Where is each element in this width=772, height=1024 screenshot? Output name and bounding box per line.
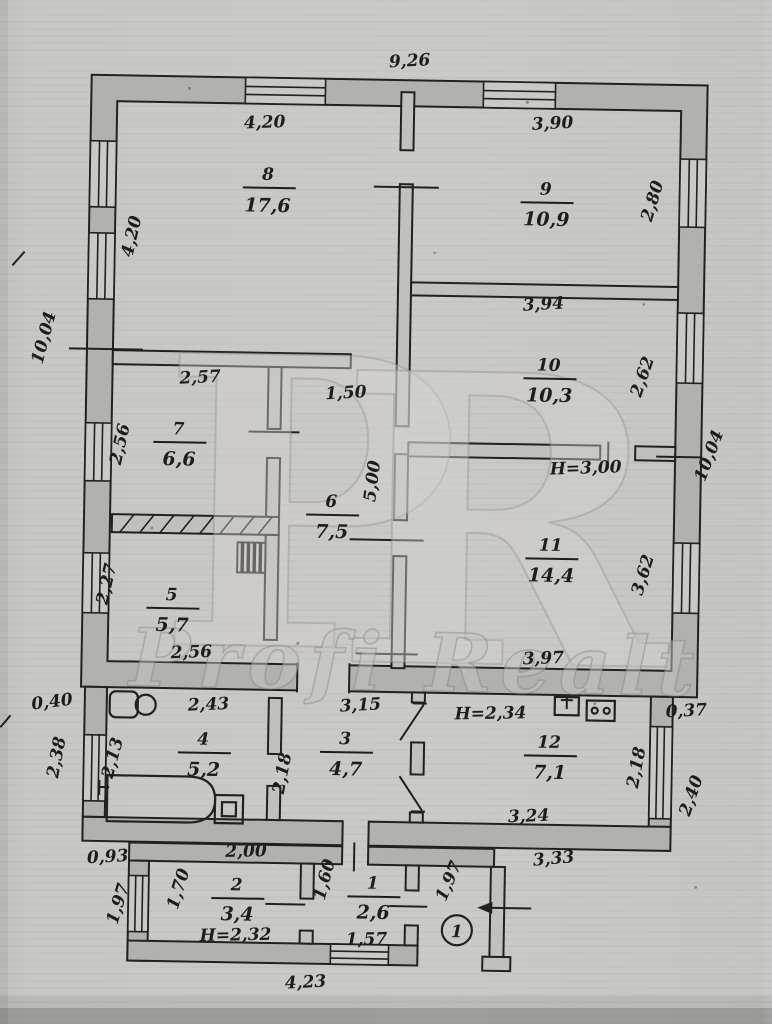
svg-text:2: 2 (230, 875, 243, 895)
window (88, 233, 115, 299)
bathtub-icon (99, 775, 216, 823)
room-label-9: 910,9 (520, 179, 574, 231)
window (672, 543, 699, 613)
wall-segment (405, 925, 418, 945)
room-label-1: 12,6 (347, 873, 401, 924)
floorplan: 1 P R Profi Realt 817,6 910,9 (0, 43, 735, 1001)
svg-text:11: 11 (539, 536, 563, 556)
window (676, 313, 703, 383)
dim-room8-width: 4,20 (244, 112, 286, 133)
svg-text:6,6: 6,6 (162, 448, 195, 471)
dim-top-width: 9,26 (388, 50, 431, 72)
svg-text:5,2: 5,2 (187, 758, 220, 781)
dim-bottom-width: 4,23 (284, 972, 327, 994)
dim-room3-height: 2,18 (269, 751, 297, 797)
dim-room9-height: 2,80 (637, 178, 669, 225)
svg-text:7,5: 7,5 (315, 521, 348, 544)
dim-room8-height: 4,20 (118, 214, 147, 259)
dim-ceiling-annex: H=2,34 (453, 703, 526, 724)
watermark: P R Profi Realt (126, 269, 709, 763)
svg-text:3,4: 3,4 (220, 903, 253, 926)
dim-room12-width: 3,24 (508, 806, 550, 827)
wall-segment (482, 957, 510, 971)
svg-text:9: 9 (540, 180, 552, 200)
svg-text:10: 10 (537, 356, 561, 376)
dim-room11-width: 3,97 (522, 648, 564, 669)
room-label-8: 817,6 (242, 164, 296, 217)
window (679, 159, 706, 227)
wall-segment (406, 865, 419, 890)
svg-text:4: 4 (197, 730, 209, 750)
dim-ceiling-main: H=3,00 (548, 457, 622, 480)
svg-text:7,1: 7,1 (533, 762, 566, 785)
dim-left-height: 10,04 (28, 309, 61, 366)
svg-text:3: 3 (339, 729, 351, 749)
wall-segment (368, 847, 494, 867)
svg-text:14,4: 14,4 (528, 564, 575, 587)
wall-segment (400, 92, 414, 150)
wall-segment (410, 812, 423, 822)
svg-text:5,7: 5,7 (155, 614, 188, 637)
window (483, 82, 555, 109)
window (89, 141, 116, 207)
dim-room4-width: 2,43 (186, 694, 229, 715)
dim-room1-width: 1,57 (346, 929, 388, 950)
entrance-badge-number: 1 (451, 922, 463, 942)
svg-text:12: 12 (537, 733, 561, 753)
svg-text:10,3: 10,3 (526, 384, 573, 407)
dim-room9-width: 3,90 (531, 113, 574, 135)
dim-hall-width: 1,50 (325, 382, 368, 404)
svg-text:1: 1 (367, 874, 379, 894)
dim-offset-right: 0,37 (665, 700, 708, 722)
dim-room10-width: 3,94 (522, 294, 564, 316)
svg-text:4,7: 4,7 (329, 758, 362, 781)
wall-segment (300, 930, 313, 943)
dim-annex-right-outer: 2,40 (675, 773, 708, 820)
dim-offset-left: 0,40 (30, 690, 74, 715)
svg-text:2,6: 2,6 (355, 901, 389, 924)
svg-text:17,6: 17,6 (244, 194, 291, 217)
dim-room3-width: 3,15 (339, 694, 381, 716)
dim-porch-width: 3,33 (532, 847, 575, 871)
window (128, 875, 149, 931)
svg-text:10,9: 10,9 (523, 208, 570, 231)
dim-room5-width: 2,56 (169, 642, 212, 663)
dim-ceiling-annex2: H=2,32 (199, 925, 272, 946)
entrance-badge: 1 (442, 915, 473, 946)
floorplan-scan: 1 P R Profi Realt 817,6 910,9 (0, 0, 772, 1024)
room-label-2: 23,4 (211, 875, 265, 926)
window (245, 77, 325, 104)
dim-room2-width: 2,00 (224, 841, 267, 862)
svg-text:7: 7 (172, 419, 184, 439)
dim-room7-width: 2,57 (178, 367, 222, 389)
dim-room2-height: 1,70 (163, 866, 194, 912)
dim-annex-left-outer: 2,38 (43, 735, 71, 781)
dim-offset-bottom-left: 0,93 (87, 846, 130, 868)
svg-text:8: 8 (261, 165, 274, 185)
svg-text:5: 5 (166, 585, 178, 605)
svg-text:6: 6 (325, 492, 337, 512)
